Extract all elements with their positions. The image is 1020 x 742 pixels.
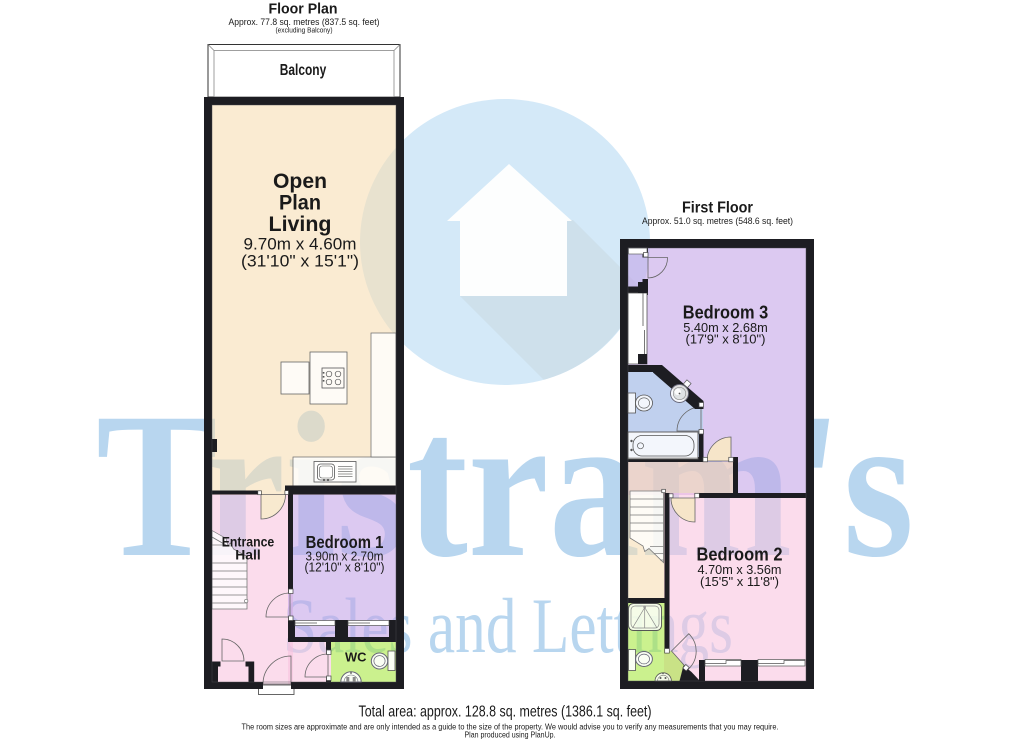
svg-text:Approx. 51.0 sq. metres (548.6: Approx. 51.0 sq. metres (548.6 sq. feet) [642,216,793,226]
svg-text:(15'5" x 11'8"): (15'5" x 11'8") [700,574,779,589]
svg-text:(17'9" x 8'10"): (17'9" x 8'10") [686,332,766,347]
svg-text:Floor Plan: Floor Plan [269,1,338,18]
svg-text:(excluding Balcony): (excluding Balcony) [276,28,333,35]
svg-text:Hall: Hall [235,547,261,563]
svg-text:Balcony: Balcony [280,62,327,79]
svg-text:(31'10" x 15'1"): (31'10" x 15'1") [241,253,359,271]
svg-text:Plan produced using PlanUp.: Plan produced using PlanUp. [465,731,556,740]
svg-text:9.70m x 4.60m: 9.70m x 4.60m [244,236,357,254]
svg-text:(12'10" x 8'10"): (12'10" x 8'10") [305,560,385,575]
svg-text:WC: WC [345,650,367,665]
svg-text:Total area: approx. 128.8 sq.: Total area: approx. 128.8 sq. metres (13… [359,704,652,721]
svg-text:Approx. 77.8 sq. metres (837.5: Approx. 77.8 sq. metres (837.5 sq. feet) [229,17,380,27]
svg-text:Living: Living [269,212,332,236]
svg-text:First Floor: First Floor [682,200,753,217]
svg-text:Open: Open [273,169,327,193]
svg-text:Plan: Plan [279,191,321,215]
